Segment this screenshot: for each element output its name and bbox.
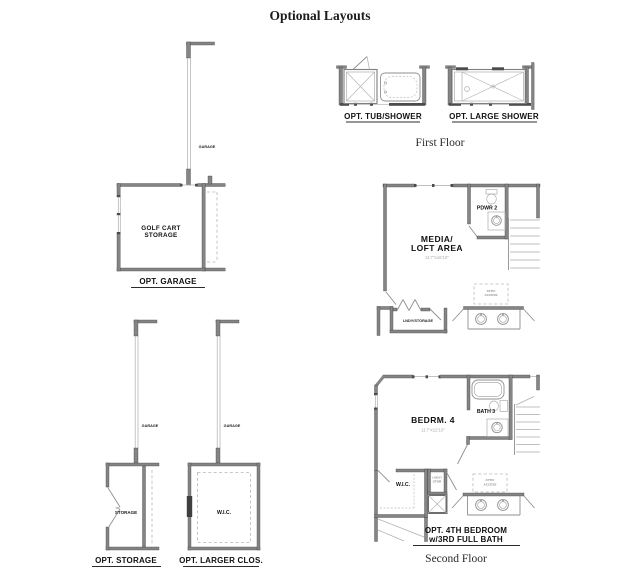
- sink-icon: [488, 212, 505, 230]
- bedroom4-label: BEDRM. 4: [411, 415, 455, 425]
- vanity-double-sink: [453, 307, 535, 330]
- sink-icon: [476, 314, 487, 325]
- attic-access-label-line2: ACCESS: [485, 293, 498, 297]
- opt-tub-shower-label: OPT. TUB/SHOWER: [344, 112, 422, 121]
- opt-garage-label: OPT. GARAGE: [139, 277, 197, 286]
- opt-large-shower-plan: OPT. LARGE SHOWER: [446, 63, 539, 123]
- media-loft-label-line2: LOFT AREA: [411, 243, 463, 253]
- stairs: [515, 397, 541, 456]
- closet-garage-wall-label: GARAGE: [224, 424, 241, 428]
- loft-door-swing: [386, 292, 396, 305]
- bedroom4-walls: [374, 375, 540, 472]
- golf-cart-storage-label-line1: GOLF CART: [141, 225, 180, 232]
- bath3-door-swing: [458, 445, 468, 465]
- first-floor-caption: First Floor: [416, 137, 465, 149]
- storage-bifold-door: [108, 487, 121, 529]
- bath-door-swing: [524, 309, 535, 321]
- sink-icon: [487, 419, 508, 437]
- bedroom4-plan: BATH 3 W.I.C.: [374, 375, 540, 546]
- storage-garage-wall-label: GARAGE: [142, 424, 159, 428]
- optional-layouts-sheet: Optional Layouts: [0, 0, 639, 577]
- opt-storage-label: OPT. STORAGE: [95, 556, 157, 565]
- loft-laundry-label: LNDY/STORAGE: [403, 319, 434, 323]
- closet-garage-wall: [216, 320, 239, 464]
- sink-icon: [476, 500, 487, 511]
- wic-door-slab: [187, 496, 192, 517]
- shower-door-swing: [353, 57, 370, 70]
- loft-laundry-room: LNDY/STORAGE: [390, 300, 447, 334]
- opt-tub-shower-plan: OPT. TUB/SHOWER: [337, 57, 430, 123]
- second-floor-caption: Second Floor: [425, 553, 487, 565]
- wic-door-swing: [378, 471, 390, 483]
- toilet-icon: [486, 190, 497, 205]
- shower-niche-icon: [456, 67, 468, 70]
- shower-fixture: [344, 70, 377, 104]
- garage-door-dashed: [207, 192, 217, 262]
- storage-room-walls: [106, 463, 159, 550]
- pdwr2-label: PDWR 2: [477, 206, 497, 212]
- bath3-label: BATH 3: [477, 409, 495, 415]
- vanity-double-sink: [452, 493, 535, 515]
- sink-icon: [498, 314, 509, 325]
- bedroom4-wic: W.I.C.: [375, 469, 428, 542]
- opt-larger-closet-label: OPT. LARGER CLOS.: [179, 556, 263, 565]
- closet-door-swing: [447, 473, 457, 490]
- bedroom4-dims: 11'7"x12'10": [421, 428, 445, 433]
- attic-access-label-line1: ATTIC: [486, 478, 496, 482]
- golf-cart-storage-label-line2: STORAGE: [144, 232, 177, 239]
- large-shower-fixture: [452, 67, 526, 103]
- pdwr2-room: PDWR 2: [468, 184, 509, 239]
- shower-drain-icon: [465, 87, 470, 92]
- stairs: [509, 218, 541, 270]
- garage-wall-label: GARAGE: [199, 145, 216, 149]
- media-loft-dims: 11'7"x16'10": [425, 255, 449, 260]
- wic-shelving-dashed: [198, 473, 251, 543]
- attic-access-box: ATTIC ACCESS: [473, 474, 507, 492]
- wic-room-label: W.I.C.: [217, 510, 232, 516]
- garage-wall: [187, 42, 215, 185]
- opt-garage-plan: GARAGE GOLF CART STORAGE OPT: [117, 42, 225, 288]
- media-loft-plan: PDWR 2 LNDY/STORAGE: [377, 184, 540, 336]
- bath-door-swing: [524, 496, 535, 508]
- chase-xbox: [428, 495, 447, 513]
- opt-bedroom4-label-line1: OPT. 4TH BEDROOM: [425, 526, 507, 535]
- shower-niche-icon: [492, 67, 504, 70]
- storage-room-label: STORAGE: [115, 510, 137, 515]
- tub-fixture: [472, 380, 504, 399]
- opt-bedroom4-label-line2: w/3RD FULL BATH: [428, 535, 503, 544]
- attic-access-box: ATTIC ACCESS: [474, 284, 508, 304]
- bath3-room: BATH 3: [458, 375, 513, 464]
- sink-icon: [498, 500, 509, 511]
- opt-larger-closet-plan: GARAGE W.I.C. OPT. LARGER CLOS.: [179, 320, 263, 567]
- storage-garage-wall: [134, 320, 157, 464]
- page-title: Optional Layouts: [270, 8, 371, 23]
- laundry-closet-label-line2: STOR: [433, 480, 442, 484]
- bath-door-swing: [452, 496, 463, 508]
- opt-storage-plan: GARAGE STORAGE OPT. STORAGE: [92, 320, 161, 567]
- opt-large-shower-label: OPT. LARGE SHOWER: [449, 112, 539, 121]
- golf-cart-storage-walls: [117, 176, 225, 271]
- bedroom4-laundry-closet: LNDY/ STOR: [428, 469, 457, 495]
- attic-access-label-line2: ACCESS: [484, 483, 497, 487]
- tub-fixture: [381, 73, 421, 101]
- bath-door-swing: [453, 309, 464, 321]
- bedroom4-wic-label: W.I.C.: [396, 482, 411, 488]
